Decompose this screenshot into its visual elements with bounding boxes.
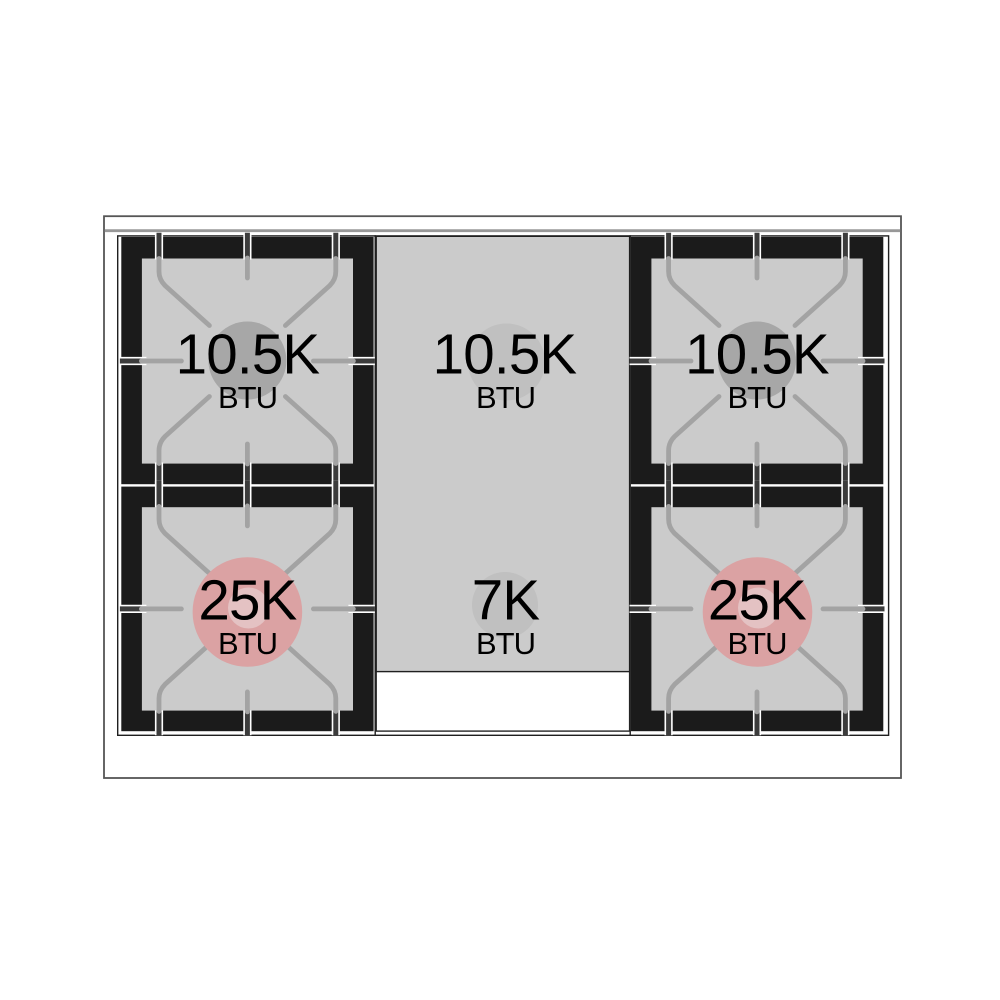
svg-text:BTU: BTU [476,626,535,661]
svg-text:BTU: BTU [728,380,787,415]
svg-text:10.5K: 10.5K [176,322,321,385]
svg-text:BTU: BTU [476,380,535,415]
svg-text:25K: 25K [708,569,807,632]
svg-text:BTU: BTU [728,626,787,661]
svg-text:BTU: BTU [218,380,277,415]
svg-text:BTU: BTU [218,626,277,661]
svg-text:25K: 25K [198,569,297,632]
svg-text:7K: 7K [472,569,541,632]
svg-text:10.5K: 10.5K [433,322,578,385]
svg-text:10.5K: 10.5K [685,322,830,385]
